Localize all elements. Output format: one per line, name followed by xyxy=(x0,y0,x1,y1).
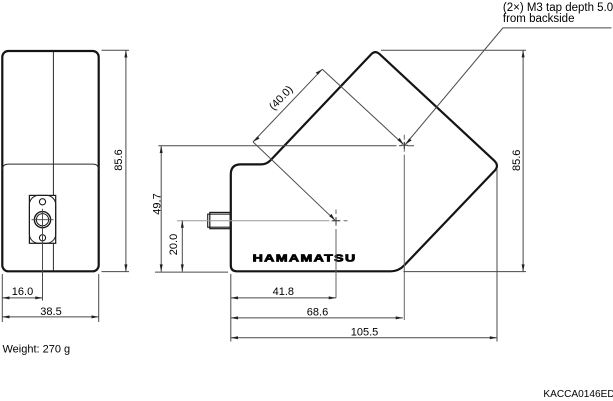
svg-text:Weight: 270 g: Weight: 270 g xyxy=(3,344,71,356)
svg-text:KACCA0146ED: KACCA0146ED xyxy=(543,389,613,400)
svg-text:49.7: 49.7 xyxy=(151,193,163,214)
svg-text:20.0: 20.0 xyxy=(168,234,180,255)
svg-text:85.6: 85.6 xyxy=(511,150,523,171)
svg-text:68.6: 68.6 xyxy=(307,306,328,318)
svg-text:16.0: 16.0 xyxy=(12,286,33,298)
svg-text:HAMAMATSU: HAMAMATSU xyxy=(253,254,357,265)
svg-text:41.8: 41.8 xyxy=(273,286,294,298)
svg-text:105.5: 105.5 xyxy=(351,327,379,339)
svg-text:38.5: 38.5 xyxy=(40,306,61,318)
svg-text:(2×) M3 tap depth 5.0: (2×) M3 tap depth 5.0 xyxy=(503,2,613,14)
svg-text:from backside: from backside xyxy=(503,13,575,25)
svg-text:85.6: 85.6 xyxy=(113,149,125,170)
